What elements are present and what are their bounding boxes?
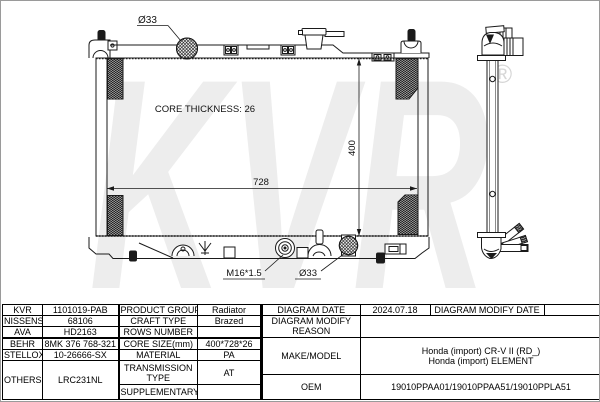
brand-name: AVA	[3, 327, 43, 339]
table-row: OTHERS LRC231NL TRANSMISSION TYPE AT	[3, 361, 261, 385]
core-thickness-label: CORE THICKNESS: 26	[155, 104, 255, 115]
brand-number: LRC231NL	[43, 361, 119, 400]
brand-number: 68106	[43, 316, 119, 327]
spec-label: CRAFT TYPE	[119, 316, 198, 327]
spec-label: CORE SIZE(mm)	[119, 338, 198, 350]
tank-clip-bottom-right	[385, 244, 406, 254]
brand-number: 1101019-PAB	[43, 305, 119, 316]
tank-tab-1	[224, 247, 235, 258]
table-row: NISSENS 68106 CRAFT TYPE Brazed	[3, 316, 261, 327]
diagram-modify-reason-label: DIAGRAM MODIFY REASON	[262, 316, 360, 337]
spec-value	[198, 385, 261, 400]
spec-label: PRODUCT GROUP	[119, 305, 198, 316]
spec-tables: KVR 1101019-PAB PRODUCT GROUP Radiator N…	[2, 304, 598, 400]
table-row: DIAGRAM DATE 2024.07.18 DIAGRAM MODIFY D…	[262, 305, 600, 316]
spec-value: Brazed	[198, 316, 261, 327]
bottom-outlet-diameter-label: Ø33	[299, 268, 317, 279]
tank-clip-mid	[281, 45, 295, 55]
corner-pad-bl	[108, 196, 124, 236]
top-inlet-diameter-label: Ø33	[138, 15, 157, 26]
brand-number: 8MK 376 768-321	[43, 338, 119, 350]
table-row: MAKE/MODEL Honda (import) CR-V II (RD_) …	[262, 337, 600, 375]
tank-tab-2	[297, 248, 308, 259]
brand-number: HD2163	[43, 327, 119, 339]
brand-name: STELLOX	[3, 350, 43, 361]
brand-name: NISSENS	[3, 316, 43, 327]
bottom-left-peg	[130, 251, 137, 261]
diagram-modify-date-value	[544, 305, 600, 316]
table-row: DIAGRAM MODIFY REASON	[262, 316, 600, 337]
core-width-value: 728	[253, 177, 269, 188]
make-model-label: MAKE/MODEL	[262, 337, 360, 375]
brand-number: 10-26666-SX	[43, 350, 119, 361]
oem-value: 19010PPAA01/19010PPAA51/19010PPLA51	[360, 375, 600, 400]
table-row: KVR 1101019-PAB PRODUCT GROUP Radiator	[3, 305, 261, 316]
spec-label: TRANSMISSION TYPE	[119, 361, 198, 385]
table-row: BEHR 8MK 376 768-321 CORE SIZE(mm) 400*7…	[3, 338, 261, 350]
spec-label: MATERIAL	[119, 350, 198, 361]
spec-label: SUPPLEMENTARY	[119, 385, 198, 400]
table-row: AVA HD2163 ROWS NUMBER	[3, 327, 261, 339]
tank-clip-right	[372, 53, 394, 61]
cross-reference-table: KVR 1101019-PAB PRODUCT GROUP Radiator N…	[2, 304, 261, 400]
diagram-modify-date-label: DIAGRAM MODIFY DATE	[430, 305, 544, 316]
spec-value: 400*728*26	[198, 338, 261, 350]
diagram-modify-reason-value	[360, 316, 600, 337]
make-model-line: Honda (import) ELEMENT	[362, 356, 600, 366]
oem-label: OEM	[262, 375, 360, 400]
table-row: OEM 19010PPAA01/19010PPAA51/19010PPLA51	[262, 375, 600, 400]
spec-value	[198, 327, 261, 339]
corner-pad-tl	[108, 59, 124, 99]
diagram-info-table: DIAGRAM DATE 2024.07.18 DIAGRAM MODIFY D…	[261, 304, 600, 400]
drain-plug	[276, 239, 295, 258]
spec-value: AT	[198, 361, 261, 385]
brand-name: KVR	[3, 305, 43, 316]
spec-label: ROWS NUMBER	[119, 327, 198, 339]
make-model-line: Honda (import) CR-V II (RD_)	[362, 346, 600, 356]
top-right-pin	[408, 30, 415, 42]
spec-value: PA	[198, 350, 261, 361]
bottom-outlet-port	[339, 235, 357, 256]
drain-plug-thread-label: M16*1.5	[226, 268, 261, 279]
catalog-page: KVR ®	[0, 0, 600, 402]
side-view-column	[487, 61, 498, 233]
diagram-date-label: DIAGRAM DATE	[262, 305, 360, 316]
bottom-right-peg	[377, 253, 385, 263]
table-row: STELLOX 10-26666-SX MATERIAL PA	[3, 350, 261, 361]
diagram-date-value: 2024.07.18	[360, 305, 430, 316]
tank-clip-left	[224, 45, 238, 55]
make-model-value: Honda (import) CR-V II (RD_) Honda (impo…	[360, 337, 600, 375]
radiator-diagram: KVR ®	[1, 1, 600, 304]
core-height-value: 400	[347, 140, 358, 156]
brand-name: BEHR	[3, 338, 43, 350]
corner-pad-br	[398, 195, 418, 235]
spec-value: Radiator	[198, 305, 261, 316]
tank-slot	[247, 45, 269, 49]
brand-name: OTHERS	[3, 361, 43, 400]
